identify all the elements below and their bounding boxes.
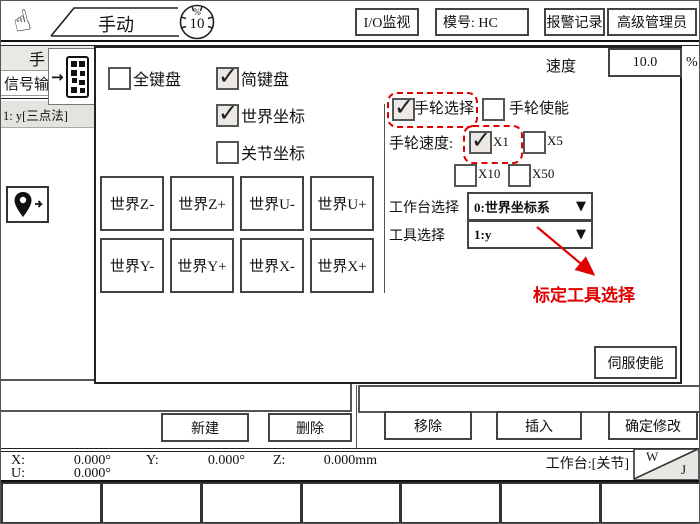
coord-mode-w: W (646, 449, 658, 465)
sidebar-selected-item-label: 1: y[三点法] (1, 105, 68, 124)
servo-enable-button[interactable]: 伺服使能 (594, 346, 677, 379)
jog-button-x-plus[interactable]: 世界X+ (310, 238, 374, 293)
confirm-modify-button[interactable]: 确定修改 (608, 411, 698, 440)
separator-strip-right (358, 385, 700, 413)
robot-teach-pendant-screen: ☝ 手动 % 10 I/O监视 模号: HC 报警记录 高级管理员 手 信号输 … (0, 0, 700, 524)
coord-mode-j: J (681, 462, 686, 478)
admin-button[interactable]: 高级管理员 (607, 8, 697, 36)
io-monitor-button[interactable]: I/O监视 (355, 8, 419, 36)
coord-mode-indicator[interactable]: W J (633, 448, 699, 480)
sidebar-tab-hand-label: 手 (1, 46, 45, 70)
simple-keyboard-label: 简键盘 (241, 66, 289, 90)
checkbox-joint-coord[interactable] (216, 141, 239, 164)
x1-label: X1 (493, 134, 509, 150)
new-button[interactable]: 新建 (161, 413, 249, 442)
workbench-select-label: 工作台选择 (389, 197, 459, 217)
x50-label: X50 (532, 166, 554, 182)
checkbox-x5[interactable] (523, 131, 546, 154)
bottom-cell[interactable] (202, 482, 302, 524)
status-z-value: 0.000mm (297, 453, 377, 469)
bottom-cell[interactable] (501, 482, 601, 524)
speed-label: 速度 (546, 55, 576, 76)
panel-inner-divider (384, 104, 385, 293)
alarm-record-button[interactable]: 报警记录 (544, 8, 605, 36)
workbench-select-value: 0:世界坐标系 (474, 197, 550, 216)
mode-banner-shape (46, 4, 296, 41)
checkbox-world-coord[interactable] (216, 104, 239, 127)
joint-coord-label: 关节坐标 (241, 140, 305, 164)
chevron-down-icon: ▼ (576, 200, 586, 213)
checkbox-x50[interactable] (508, 164, 531, 187)
checkbox-x10[interactable] (454, 164, 477, 187)
speed-input[interactable]: 10.0 (608, 48, 682, 77)
status-z-label: Z: (273, 453, 285, 469)
remove-button[interactable]: 移除 (384, 411, 472, 440)
annotation-text: 标定工具选择 (533, 281, 635, 306)
tool-select-value: 1:y (474, 227, 491, 243)
arrow-right-icon: → (51, 68, 64, 86)
x10-label: X10 (478, 166, 500, 182)
bottom-cell[interactable] (601, 482, 700, 524)
jog-button-y-plus[interactable]: 世界Y+ (170, 238, 234, 293)
status-y-value: 0.000° (173, 453, 245, 469)
bottom-cell[interactable] (302, 482, 402, 524)
jog-button-z-minus[interactable]: 世界Z- (100, 176, 164, 231)
full-keyboard-label: 全键盘 (133, 66, 181, 90)
delete-button[interactable]: 删除 (268, 413, 352, 442)
world-coord-label: 世界坐标 (241, 103, 305, 127)
bottom-cell[interactable] (1, 482, 102, 524)
status-workbench: 工作台:[关节] (501, 453, 629, 473)
insert-button[interactable]: 插入 (496, 411, 582, 440)
jog-button-x-minus[interactable]: 世界X- (240, 238, 304, 293)
checkbox-simple-keyboard[interactable] (216, 67, 239, 90)
handwheel-enable-label: 手轮使能 (509, 97, 569, 118)
checkbox-handwheel-select[interactable] (392, 98, 415, 121)
annotation-arrow-icon (529, 221, 609, 283)
keypad-icon (65, 54, 91, 100)
speed-value: 10.0 (633, 55, 658, 71)
checkbox-x1[interactable] (469, 131, 492, 154)
x5-label: X5 (547, 133, 563, 149)
mode-label: 手动 (98, 11, 134, 37)
checkbox-full-keyboard[interactable] (108, 67, 131, 90)
handwheel-select-label: 手轮选择 (414, 97, 474, 118)
speed-unit: % (686, 55, 698, 71)
jog-button-y-minus[interactable]: 世界Y- (100, 238, 164, 293)
sidebar-tab-signal-label: 信号输 (1, 73, 49, 94)
workbench-select[interactable]: 0:世界坐标系 ▼ (467, 192, 593, 221)
sidebar-selected-item[interactable]: 1: y[三点法] (1, 101, 94, 128)
status-top-line (1, 448, 700, 449)
model-number-button[interactable]: 模号: HC (435, 8, 529, 36)
jog-button-u-minus[interactable]: 世界U- (240, 176, 304, 231)
bottom-cell[interactable] (102, 482, 202, 524)
keypad-popup[interactable]: → (48, 48, 99, 105)
coord-mode-indicator-graphic (633, 448, 699, 480)
bottom-cell[interactable] (401, 482, 501, 524)
jog-button-u-plus[interactable]: 世界U+ (310, 176, 374, 231)
location-pin-icon (11, 190, 45, 220)
status-y-label: Y: (146, 453, 159, 469)
checkbox-handwheel-enable[interactable] (482, 98, 505, 121)
locate-point-button[interactable] (6, 186, 49, 223)
button-area-divider (356, 385, 357, 449)
bottom-cell-row (1, 482, 700, 524)
gauge-value: 10 (186, 16, 208, 33)
tool-select-label: 工具选择 (389, 225, 445, 245)
jog-button-z-plus[interactable]: 世界Z+ (170, 176, 234, 231)
handwheel-speed-label: 手轮速度: (389, 132, 453, 153)
